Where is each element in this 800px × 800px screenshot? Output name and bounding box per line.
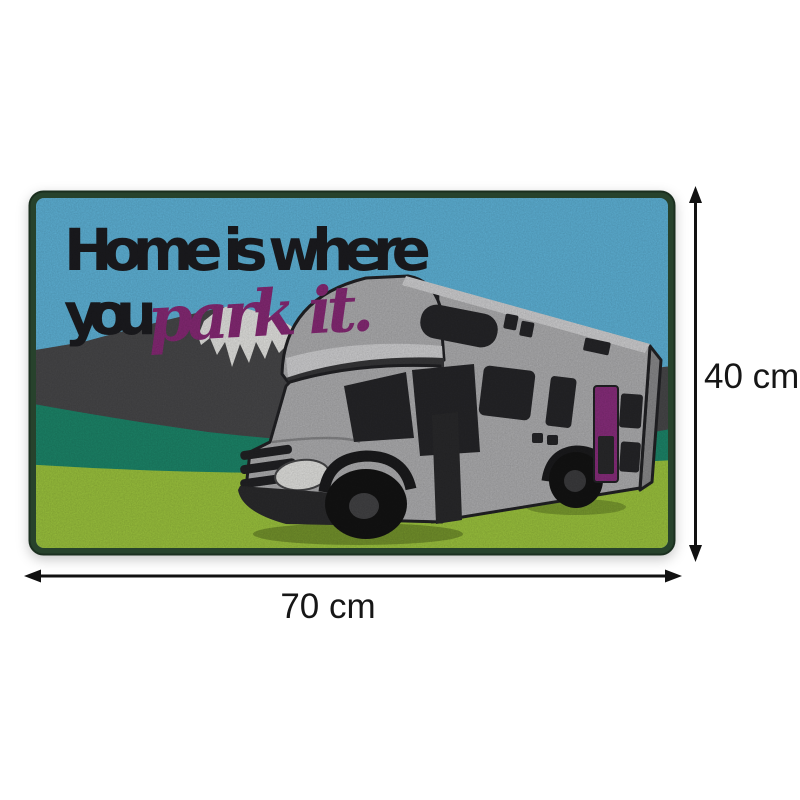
product-photo: Home is where you park it. 40 cm 70 cm — [0, 0, 800, 800]
dimension-annotations: 40 cm 70 cm — [0, 0, 800, 800]
width-dimension-label: 70 cm — [280, 587, 375, 626]
height-dimension-arrow — [689, 186, 702, 562]
width-dimension-arrow — [24, 570, 682, 583]
height-dimension-label: 40 cm — [704, 357, 799, 396]
